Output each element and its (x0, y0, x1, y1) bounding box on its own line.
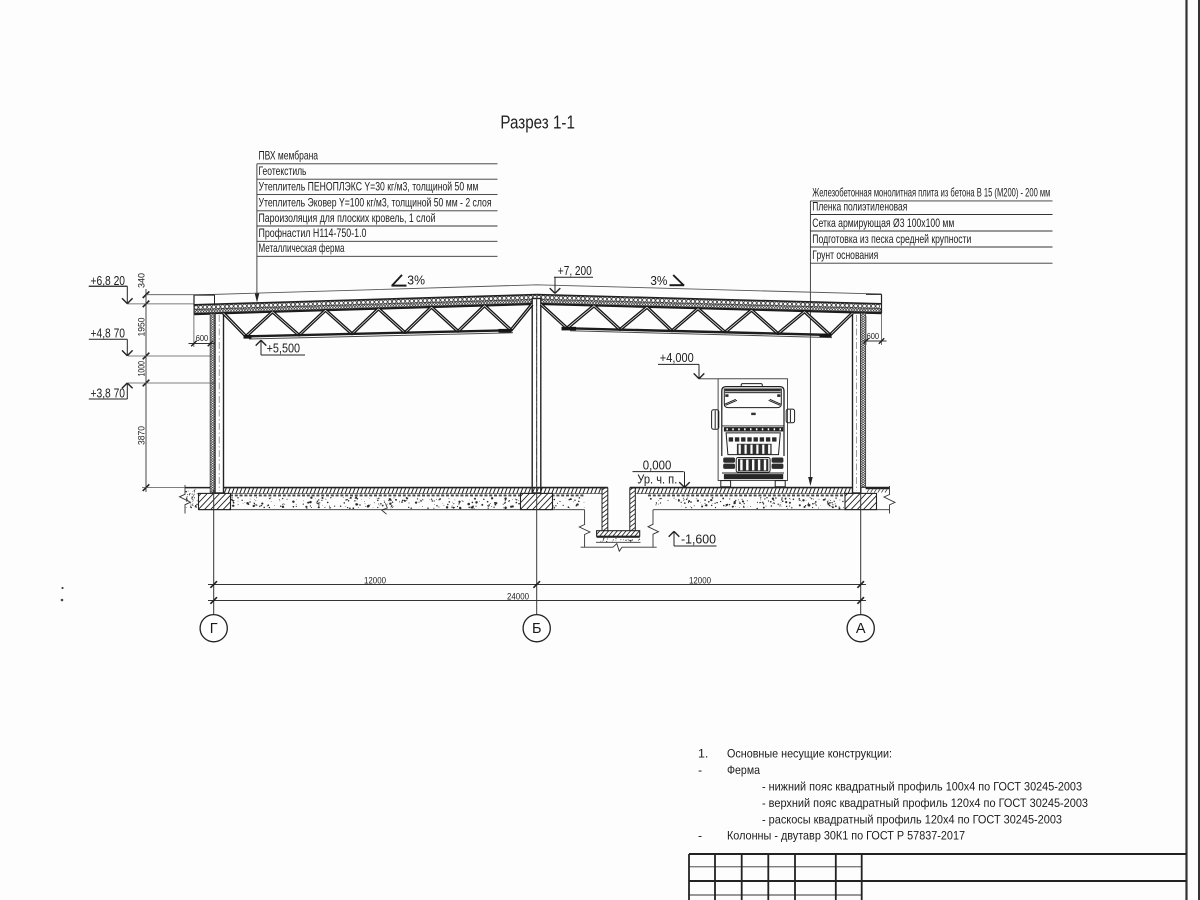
svg-text:Подготовка из песка средней кр: Подготовка из песка средней крупности (812, 232, 971, 246)
svg-text:+4,000: +4,000 (660, 351, 694, 365)
svg-text:0,000: 0,000 (643, 459, 672, 473)
svg-text:Пароизоляция для плоских крове: Пароизоляция для плоских кровель, 1 слой (259, 211, 436, 225)
svg-text:Колонны - двутавр 30К1 по ГОСТ: Колонны - двутавр 30К1 по ГОСТ Р 57837-2… (727, 829, 965, 843)
svg-text:Г: Г (210, 621, 218, 637)
svg-text:3%: 3% (650, 273, 667, 288)
svg-text:+7, 200: +7, 200 (558, 264, 592, 278)
svg-text:Б: Б (532, 621, 542, 637)
svg-text:+4,8 70: +4,8 70 (91, 326, 126, 340)
svg-text:3%: 3% (407, 273, 425, 288)
svg-text:ПВХ мембрана: ПВХ мембрана (259, 149, 319, 163)
svg-text:Металлическая ферма: Металлическая ферма (259, 241, 345, 255)
svg-text:А: А (856, 621, 866, 637)
svg-text:3870: 3870 (137, 426, 147, 445)
svg-text:Утеплитель ПЕНОПЛЭКС Y=30 кг/м: Утеплитель ПЕНОПЛЭКС Y=30 кг/м3, толщино… (259, 179, 479, 193)
svg-text:- верхний пояс квадратный проф: - верхний пояс квадратный профиль 120х4 … (762, 796, 1088, 810)
svg-text:+6,8 20: +6,8 20 (91, 274, 126, 288)
svg-text:1950: 1950 (137, 318, 147, 337)
svg-text:Профнастил Н114-750-1.0: Профнастил Н114-750-1.0 (259, 226, 367, 240)
svg-text:340: 340 (137, 273, 147, 288)
svg-text:- нижний пояс квадратный профи: - нижний пояс квадратный профиль 100х4 п… (762, 780, 1082, 794)
svg-text:Ферма: Ферма (727, 763, 760, 777)
svg-text:600: 600 (196, 333, 209, 343)
svg-text:Основные несущие конструкции:: Основные несущие конструкции: (727, 747, 892, 761)
svg-text:Грунт основания: Грунт основания (812, 248, 878, 262)
svg-text:+3,8 70: +3,8 70 (91, 387, 126, 401)
svg-text:600: 600 (867, 331, 880, 341)
svg-text:Утеплитель Эковер Y=100 кг/м3,: Утеплитель Эковер Y=100 кг/м3, толщиной … (259, 196, 492, 210)
svg-text:+5,500: +5,500 (267, 341, 301, 355)
svg-text:12000: 12000 (689, 575, 711, 586)
svg-text:Сетка армирующая Ø3 100х100 мм: Сетка армирующая Ø3 100х100 мм (812, 216, 954, 230)
svg-text:-: - (698, 829, 702, 843)
svg-text:Пленка полиэтиленовая: Пленка полиэтиленовая (812, 199, 907, 213)
svg-text:-: - (698, 763, 702, 777)
svg-text:24000: 24000 (507, 592, 529, 603)
svg-text:1.: 1. (698, 747, 708, 761)
svg-text:- раскосы квадратный профиль 1: - раскосы квадратный профиль 120х4 по ГО… (762, 813, 1062, 827)
svg-text:Разрез 1-1: Разрез 1-1 (500, 111, 575, 132)
svg-text:-1,600: -1,600 (681, 533, 716, 547)
svg-text:Ур. ч. п.: Ур. ч. п. (637, 472, 677, 486)
svg-text:12000: 12000 (364, 575, 386, 586)
svg-text:1000: 1000 (137, 361, 147, 377)
svg-text:Железобетонная монолитная плит: Железобетонная монолитная плита из бетон… (812, 186, 1050, 200)
svg-text:Геотекстиль: Геотекстиль (259, 164, 307, 178)
